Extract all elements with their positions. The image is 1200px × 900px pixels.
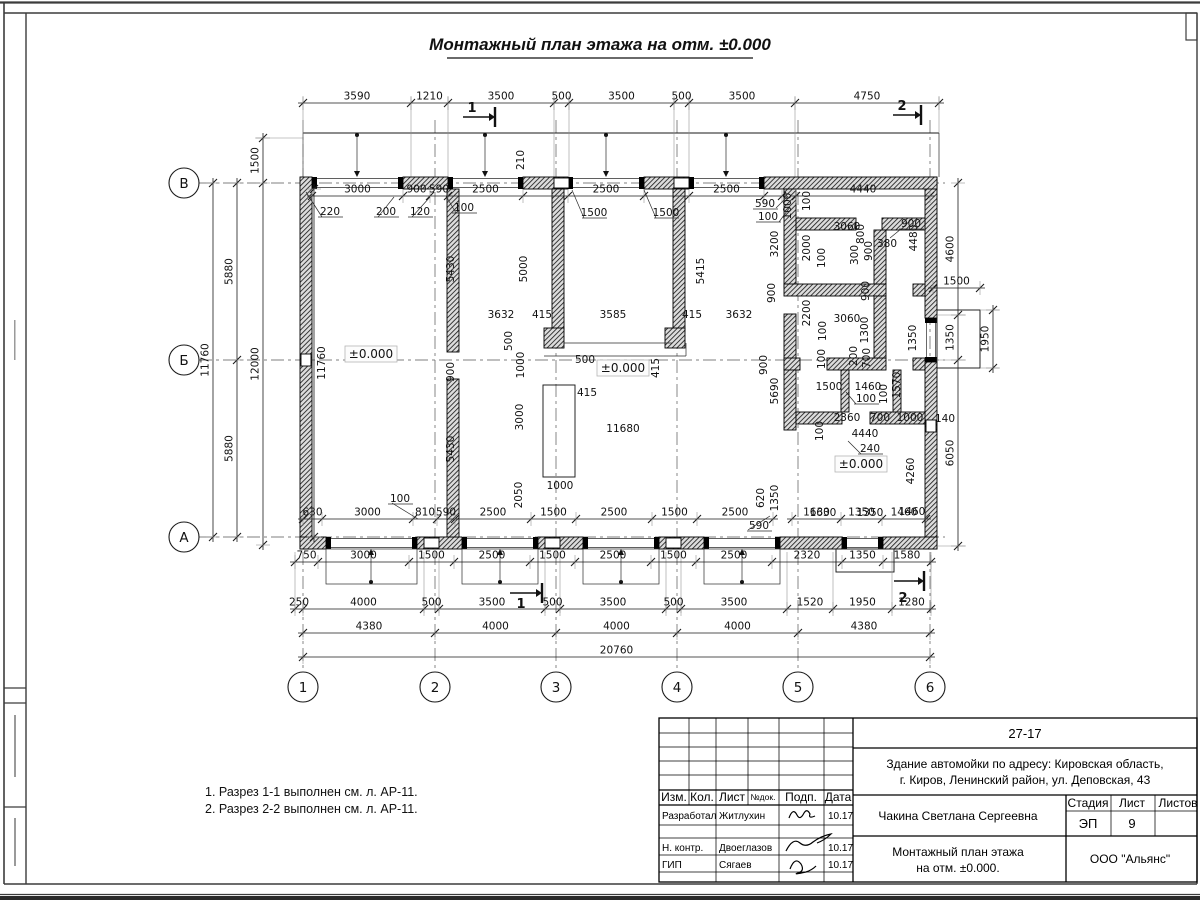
scan-edge (0, 896, 1200, 900)
dim-label: 11680 (606, 423, 639, 435)
dim-label: 1300 (859, 317, 871, 344)
svg-text:4750: 4750 (854, 91, 881, 103)
svg-text:590: 590 (436, 507, 456, 519)
dim-label: 5430 (445, 256, 457, 283)
dim-label: 415 (650, 358, 662, 378)
svg-text:3500: 3500 (600, 597, 627, 609)
dim-label: 100 (758, 211, 778, 223)
dim-label: 100 (817, 321, 829, 341)
dim-label: 5415 (695, 258, 707, 285)
dim-chain-bottom-axes: 43804000400040004380 (298, 621, 935, 641)
doc-number: 27-17 (1008, 726, 1041, 741)
dim-label: 3632 (726, 309, 753, 321)
svg-text:1950: 1950 (849, 597, 876, 609)
row-role: Разработал (662, 810, 717, 822)
axis-row-label: В (179, 176, 188, 192)
dim-label: 415 (532, 309, 552, 321)
dim-label: 4260 (905, 458, 917, 485)
svg-text:1950: 1950 (980, 326, 992, 353)
dim-label: 100 (814, 421, 826, 441)
svg-text:500: 500 (542, 597, 562, 609)
dim-chain-left-inner: 150012000 (250, 133, 271, 550)
dim-label: 3632 (488, 309, 515, 321)
dim-label: 620 (755, 488, 767, 508)
svg-text:1500: 1500 (660, 550, 687, 562)
column-415 (544, 328, 564, 348)
dim-label: 380 (877, 238, 897, 250)
dim-label: 1350 (857, 507, 884, 519)
dim-label: 100 (816, 349, 828, 369)
svg-text:1520: 1520 (797, 597, 824, 609)
drawing-name-1: Монтажный план этажа (892, 845, 1024, 859)
company-name: ООО "Альянс" (1090, 852, 1170, 866)
column-415 (665, 328, 685, 348)
svg-text:4000: 4000 (482, 621, 509, 633)
dim-label: 900 (860, 281, 872, 301)
stage-value: ЭП (1079, 816, 1098, 831)
svg-text:5880: 5880 (224, 435, 236, 462)
axis-row-label: Б (179, 353, 188, 369)
dim-label: 1630 (810, 507, 837, 519)
object-address-2: г. Киров, Ленинский район, ул. Деповская… (900, 773, 1151, 787)
level-mark: ±0.000 (601, 361, 645, 375)
svg-text:2500: 2500 (479, 550, 506, 562)
dim-label: 500 (503, 331, 515, 351)
dim-label: 200 (848, 346, 860, 366)
dim-label: 240 (860, 443, 880, 455)
dim-label: 1460 (899, 506, 926, 518)
dim-label: 900 (766, 283, 778, 303)
axis-col-label: 4 (673, 680, 682, 696)
dim-label: 1500 (653, 207, 680, 219)
svg-text:20760: 20760 (600, 645, 633, 657)
dim-label: 415 (577, 387, 597, 399)
service-pit (543, 385, 575, 477)
svg-text:2320: 2320 (794, 550, 821, 562)
svg-text:630: 630 (302, 507, 322, 519)
svg-text:500: 500 (671, 91, 691, 103)
axis-col-label: 3 (552, 680, 561, 696)
section-1-label: 1 (516, 597, 525, 612)
dim-label: 415 (682, 309, 702, 321)
dim-chain-bottom-total: 20760 (298, 645, 935, 665)
dim-label: 1000 (547, 480, 574, 492)
dim-chain-bottom-inner: 630300081059025001500250015002500 (298, 507, 778, 527)
axis-col-label: 2 (431, 680, 440, 696)
svg-text:3590: 3590 (344, 91, 371, 103)
dim-label: 4440 (852, 428, 879, 440)
col-data: Дата (825, 790, 852, 804)
dim-label: 1350 (907, 325, 919, 352)
dim-label: 100 (454, 202, 474, 214)
section-1-label: 1 (467, 101, 476, 116)
note-line-1: 1. Разрез 1-1 выполнен см. л. АР-11. (205, 785, 418, 799)
dim-chain-top-outer: 359012103500500350050035004750 (298, 91, 944, 111)
svg-text:12000: 12000 (250, 347, 262, 380)
stage-label: Стадия (1068, 796, 1109, 810)
axis-col-label: 5 (794, 680, 803, 696)
svg-text:3500: 3500 (608, 91, 635, 103)
svg-text:1210: 1210 (416, 91, 443, 103)
svg-text:3500: 3500 (721, 597, 748, 609)
dim-chain-right-porch: 1950 (980, 305, 1001, 373)
free-dim-labels: 220 200 120 100 1500 1500 590 100 210 10… (320, 150, 955, 532)
dim-label: 2200 (801, 300, 813, 327)
sheets-label: Листов (1159, 796, 1198, 810)
margin-stamp-smudge (14, 818, 16, 866)
dim-label: 1000 (897, 412, 924, 424)
svg-text:2500: 2500 (713, 184, 740, 196)
row-date: 10.17 (828, 860, 853, 871)
svg-text:3000: 3000 (354, 507, 381, 519)
row-role: Н. контр. (662, 843, 703, 854)
svg-text:900: 900 (406, 184, 426, 196)
svg-text:1580: 1580 (894, 550, 921, 562)
row-name: Сягаев (719, 860, 752, 871)
dim-label: 5690 (769, 378, 781, 405)
sheet-label: Лист (1119, 796, 1146, 810)
svg-text:1500: 1500 (250, 147, 262, 174)
drawing-sheet: Монтажный план этажа на отм. ±0.000 (0, 0, 1200, 900)
dim-label: 1500 (816, 381, 843, 393)
dim-label: 2050 (513, 482, 525, 509)
dim-label: 3585 (600, 309, 627, 321)
svg-text:1500: 1500 (661, 507, 688, 519)
dim-label: 1570 (891, 372, 903, 399)
svg-text:3000: 3000 (344, 184, 371, 196)
dim-label: 700 (861, 348, 873, 368)
svg-text:3500: 3500 (479, 597, 506, 609)
axis-col-label: 1 (299, 680, 308, 696)
dim-label: 100 (856, 393, 876, 405)
dim-label: 900 (758, 355, 770, 375)
col-izm: Изм. (661, 790, 687, 804)
svg-text:11760: 11760 (316, 346, 328, 379)
top-right-format-box (1186, 13, 1197, 40)
dim-label: 1500 (581, 207, 608, 219)
col-ndok: №док. (751, 792, 776, 802)
svg-text:3500: 3500 (488, 91, 515, 103)
dim-label: 300 (849, 245, 861, 265)
row-name: Двоеглазов (719, 843, 772, 854)
sheet-number: 9 (1128, 816, 1135, 831)
dim-chain-bottom-mid: 7503000150025001500250015002500232013501… (290, 550, 936, 570)
section-2-label: 2 (898, 591, 907, 606)
dim-label: 100 (878, 384, 890, 404)
dim-chain-bottom-outer: 2504000500350050035005003500152019501280 (289, 597, 936, 617)
dim-label: 2360 (834, 412, 861, 424)
svg-text:4000: 4000 (350, 597, 377, 609)
dim-label: 2000 (801, 235, 813, 262)
dim-label: 220 (320, 206, 340, 218)
level-mark: ±0.000 (349, 347, 393, 361)
dim-label: 3000 (514, 404, 526, 431)
svg-text:500: 500 (663, 597, 683, 609)
sheet-title: Монтажный план этажа на отм. ±0.000 (429, 35, 771, 54)
svg-text:4440: 4440 (850, 184, 877, 196)
svg-text:3500: 3500 (729, 91, 756, 103)
wall-right-upper (925, 177, 937, 318)
dim-label: 100 (801, 191, 813, 211)
drawing-name-2: на отм. ±0.000. (916, 861, 999, 875)
svg-text:4600: 4600 (945, 236, 957, 263)
level-marks: ±0.000 ±0.000 ±0.000 (345, 346, 887, 472)
svg-text:4380: 4380 (851, 621, 878, 633)
svg-text:250: 250 (289, 597, 309, 609)
dim-label: 210 (515, 150, 527, 170)
svg-text:11760: 11760 (200, 343, 212, 376)
row-date: 10.17 (828, 811, 853, 822)
signature (789, 811, 815, 818)
dim-label: 500 (575, 354, 595, 366)
title-block: Изм. Кол. Лист №док. Подп. Дата Разработ… (659, 718, 1198, 882)
level-mark: ±0.000 (839, 457, 883, 471)
svg-text:6050: 6050 (945, 440, 957, 467)
dim-label: 4480 (908, 225, 920, 252)
dim-label: 900 (863, 241, 875, 261)
svg-text:500: 500 (421, 597, 441, 609)
svg-text:1350: 1350 (945, 324, 957, 351)
svg-text:1500: 1500 (540, 507, 567, 519)
pilaster-left (552, 189, 564, 330)
dim-label: 900 (445, 362, 457, 382)
dim-label: 590 (755, 198, 775, 210)
axis-col-label: 6 (926, 680, 935, 696)
svg-text:2500: 2500 (472, 184, 499, 196)
object-address-1: Здание автомойки по адресу: Кировская об… (886, 757, 1163, 771)
svg-text:2500: 2500 (480, 507, 507, 519)
svg-text:1500: 1500 (418, 550, 445, 562)
note-line-2: 2. Разрез 2-2 выполнен см. л. АР-11. (205, 802, 418, 816)
svg-text:810: 810 (415, 507, 435, 519)
row-date: 10.17 (828, 843, 853, 854)
col-kol: Кол. (690, 790, 714, 804)
svg-text:1350: 1350 (849, 550, 876, 562)
svg-text:2500: 2500 (593, 184, 620, 196)
dim-chain-right-outer: 460013506050 (945, 178, 966, 551)
col-podp: Подп. (785, 790, 817, 804)
svg-text:5880: 5880 (224, 258, 236, 285)
dim-label: 140 (935, 413, 955, 425)
author-name: Чакина Светлана Сергеевна (878, 809, 1037, 823)
svg-text:4000: 4000 (724, 621, 751, 633)
svg-text:4000: 4000 (603, 621, 630, 633)
svg-text:590: 590 (429, 184, 449, 196)
section-2-label: 2 (897, 99, 906, 114)
dim-label: 1000 (515, 352, 527, 379)
dim-label: 100 (816, 248, 828, 268)
svg-text:3000: 3000 (350, 550, 377, 562)
svg-text:500: 500 (551, 91, 571, 103)
col-list: Лист (719, 790, 746, 804)
dim-label: 700 (870, 412, 890, 424)
svg-text:1500: 1500 (943, 276, 970, 288)
dim-label: 590 (749, 520, 769, 532)
wall-right-lower (925, 362, 937, 549)
dim-label: 3060 (834, 313, 861, 325)
margin-stamp-smudge (14, 715, 16, 777)
dim-label: 1350 (769, 485, 781, 512)
dim-label: 5430 (445, 436, 457, 463)
dim-label: 5000 (518, 256, 530, 283)
dim-label: 3200 (769, 231, 781, 258)
svg-text:750: 750 (296, 550, 316, 562)
row-name: Житлухин (719, 811, 765, 822)
svg-text:1500: 1500 (539, 550, 566, 562)
margin-stamp-smudge (14, 320, 16, 360)
axis-row-label: А (179, 530, 189, 546)
row-role: ГИП (662, 860, 682, 871)
svg-text:4380: 4380 (356, 621, 383, 633)
svg-text:2500: 2500 (722, 507, 749, 519)
svg-text:2500: 2500 (721, 550, 748, 562)
svg-text:2500: 2500 (600, 550, 627, 562)
svg-text:2500: 2500 (601, 507, 628, 519)
top-extension-lines (303, 97, 939, 177)
